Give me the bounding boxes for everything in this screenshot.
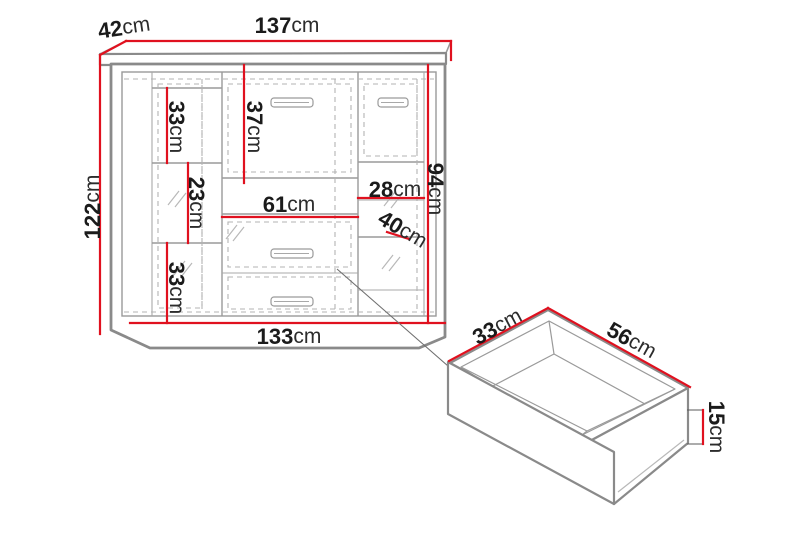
dim-unit: cm	[287, 193, 315, 216]
dim-label-left-bottom: 33cm	[165, 262, 190, 314]
drawer-2-handle	[271, 297, 313, 306]
dim-label-right-height: 94cm	[424, 163, 449, 215]
dim-label-center-door: 37cm	[243, 101, 268, 153]
dim-value: 94	[424, 163, 449, 188]
dim-value: 23	[185, 177, 210, 201]
dim-unit: cm	[81, 175, 104, 203]
dim-label-base-width: 133cm	[257, 324, 322, 349]
dim-unit: cm	[291, 14, 319, 37]
dim-unit: cm	[186, 201, 209, 229]
dim-label-left-top: 33cm	[165, 101, 190, 153]
dim-label-top-depth: 42cm	[96, 11, 151, 43]
dim-value: 15	[705, 401, 730, 425]
dim-unit: cm	[244, 125, 267, 153]
dim-unit: cm	[166, 125, 189, 153]
dim-label-center-width: 61cm	[263, 192, 315, 217]
furniture-dimension-diagram: 137cm 42cm 122cm 33cm 23cm 33cm 37cm 61c…	[0, 0, 800, 533]
dim-value: 28	[369, 177, 393, 202]
dim-label-left-middle: 23cm	[185, 177, 210, 229]
diagram-canvas: 137cm 42cm 122cm 33cm 23cm 33cm 37cm 61c…	[0, 0, 800, 533]
dim-value: 33	[165, 262, 190, 286]
dim-unit: cm	[293, 325, 321, 348]
center-door-handle	[271, 98, 313, 107]
dim-unit: cm	[166, 286, 189, 314]
dim-value: 137	[255, 13, 292, 38]
dim-value: 37	[243, 101, 268, 125]
dim-value: 133	[257, 324, 294, 349]
dim-value: 42	[96, 15, 124, 43]
dim-label-drawer-height: 15cm	[705, 401, 730, 453]
dim-label-right-width: 28cm	[369, 177, 421, 202]
dim-unit: cm	[706, 425, 729, 453]
dim-unit: cm	[393, 178, 421, 201]
dim-value: 122	[80, 203, 105, 240]
dim-label-total-height: 122cm	[80, 175, 105, 240]
right-door-handle	[378, 98, 408, 107]
dim-value: 33	[165, 101, 190, 125]
dim-value: 61	[263, 192, 287, 217]
dim-label-top-width: 137cm	[255, 13, 320, 38]
dim-unit: cm	[425, 187, 448, 215]
dim-unit: cm	[121, 12, 152, 39]
drawer-1-handle	[271, 249, 313, 258]
